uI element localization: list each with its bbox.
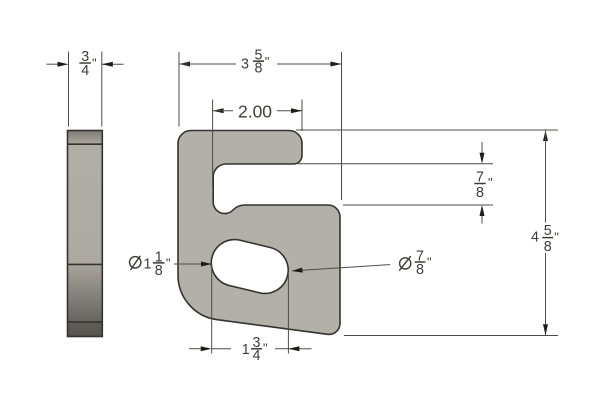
- svg-text:2.00: 2.00: [238, 101, 272, 121]
- svg-text:": ": [554, 230, 559, 245]
- svg-text:": ": [488, 175, 493, 190]
- svg-text:4: 4: [253, 348, 261, 364]
- svg-text:1: 1: [144, 256, 152, 272]
- svg-text:": ": [427, 255, 432, 270]
- svg-text:3: 3: [241, 57, 249, 73]
- svg-text:8: 8: [476, 185, 484, 201]
- svg-text:5: 5: [544, 223, 552, 239]
- svg-text:8: 8: [255, 61, 263, 77]
- svg-text:4: 4: [81, 63, 89, 79]
- svg-text:": ": [263, 341, 268, 356]
- svg-text:4: 4: [531, 230, 539, 246]
- svg-text:8: 8: [416, 262, 424, 278]
- svg-text:8: 8: [544, 239, 552, 255]
- svg-text:1: 1: [242, 342, 250, 358]
- svg-text:": ": [92, 56, 97, 71]
- svg-text:": ": [166, 255, 171, 270]
- svg-text:": ": [265, 54, 270, 69]
- svg-text:8: 8: [155, 263, 163, 279]
